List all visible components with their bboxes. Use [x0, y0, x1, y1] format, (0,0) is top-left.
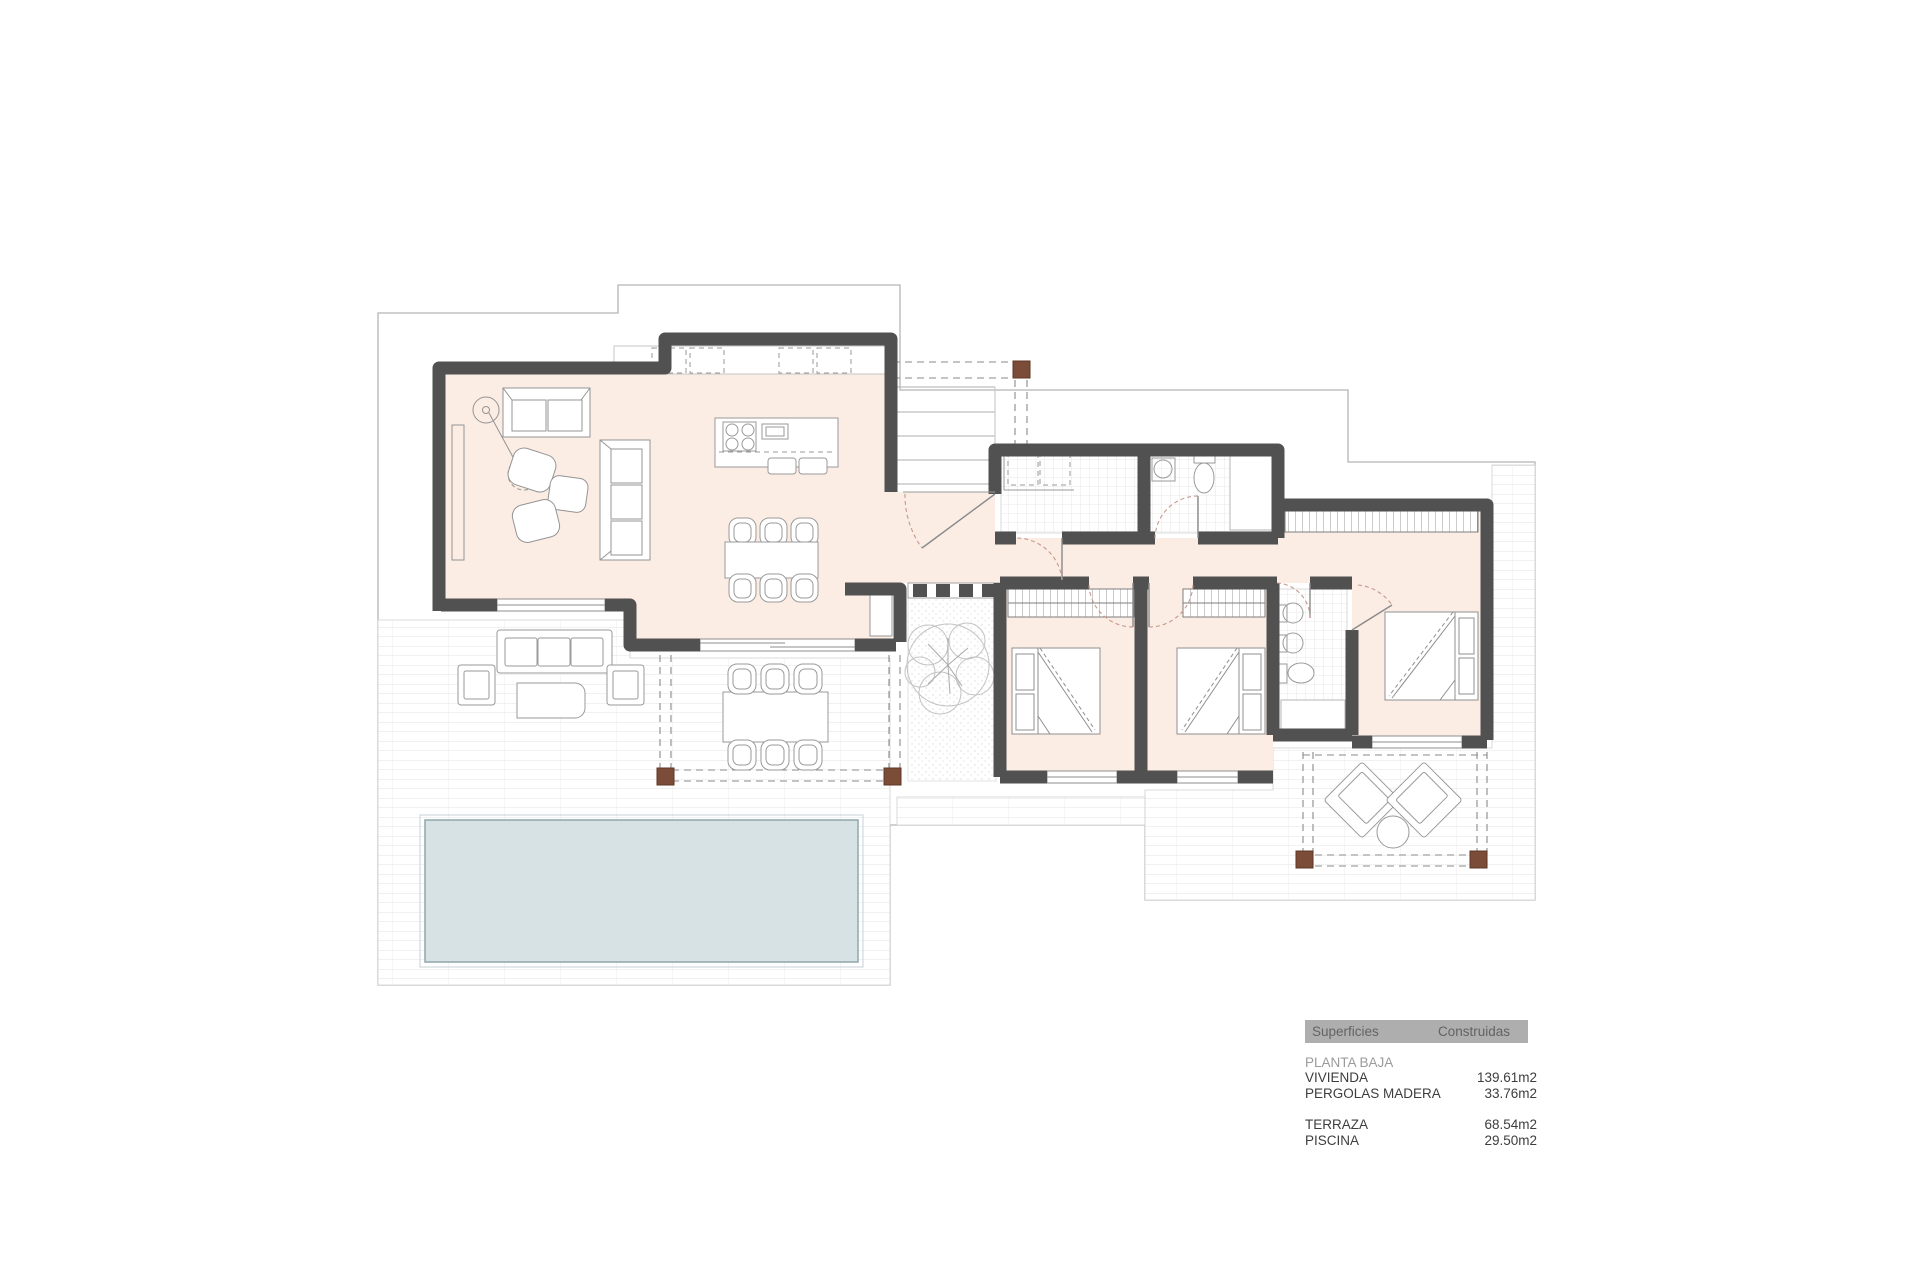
toilet [1279, 663, 1314, 683]
shower [1230, 455, 1272, 530]
kitchen-island [715, 418, 838, 474]
legend-header: Superficies Construidas [1305, 1020, 1528, 1043]
legend-section-title: PLANTA BAJA [1305, 1055, 1537, 1070]
pergola-post [1470, 851, 1487, 868]
pergola-post [884, 768, 901, 785]
legend-col-construidas: Construidas [1438, 1024, 1510, 1039]
toilet [1194, 454, 1215, 493]
sliding-door-dining [700, 639, 855, 651]
pergola-post [657, 768, 674, 785]
bed-bedroom2 [1177, 648, 1265, 734]
courtyard-window-band [908, 583, 1000, 598]
sofa-three-seat [600, 440, 650, 560]
floor-plan-page: Superficies Construidas PLANTA BAJA VIVI… [0, 0, 1920, 1280]
entrance-pergola-post [1013, 361, 1030, 378]
dining-table [725, 542, 818, 578]
legend-spacer [1305, 1101, 1537, 1117]
legend-row-vivienda: VIVIENDA 139.61m2 [1305, 1070, 1537, 1086]
dining-set [725, 518, 818, 602]
outdoor-dining-set [723, 664, 828, 770]
bed-bedroom1 [1012, 648, 1100, 734]
pool [420, 815, 863, 967]
bed-master [1385, 612, 1478, 700]
legend-row-pergolas: PERGOLAS MADERA 33.76m2 [1305, 1086, 1537, 1102]
pergola-post [1296, 851, 1313, 868]
legend-row-terraza: TERRAZA 68.54m2 [1305, 1117, 1537, 1133]
wardrobe-master [1285, 511, 1478, 532]
legend-col-superficies: Superficies [1312, 1024, 1379, 1039]
legend-row-piscina: PISCINA 29.50m2 [1305, 1133, 1537, 1149]
areas-legend: Superficies Construidas PLANTA BAJA VIVI… [1305, 1020, 1537, 1148]
sofa-two-seat [503, 388, 590, 437]
floor-plan-drawing [0, 0, 1920, 1280]
